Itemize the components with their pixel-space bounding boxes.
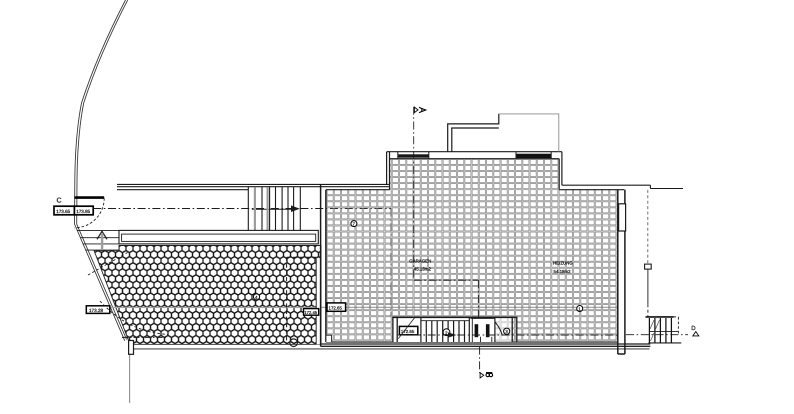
svg-text:54.18m2: 54.18m2 <box>554 269 572 274</box>
svg-text:173.85: 173.85 <box>76 209 90 214</box>
svg-text:173.28: 173.28 <box>89 308 103 313</box>
svg-text:HEIZUNG: HEIZUNG <box>553 260 573 265</box>
svg-text:172.45: 172.45 <box>304 310 317 315</box>
svg-text:45.18m2: 45.18m2 <box>414 267 432 272</box>
svg-text:C: C <box>57 197 62 204</box>
svg-text:172.65: 172.65 <box>329 306 343 311</box>
svg-text:4: 4 <box>255 295 258 300</box>
svg-text:GARAGEN: GARAGEN <box>409 258 431 263</box>
svg-text:173.65: 173.65 <box>56 209 70 214</box>
svg-text:D: D <box>691 325 696 332</box>
